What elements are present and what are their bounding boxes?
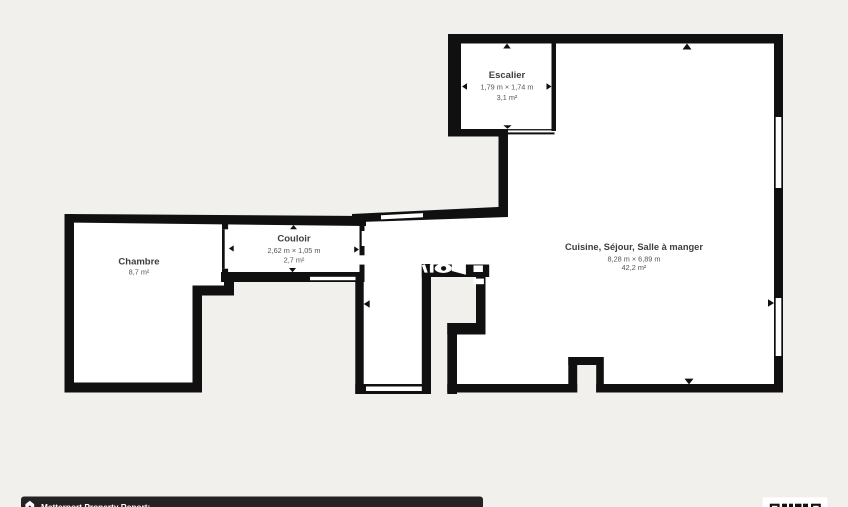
svg-text:1,79 m × 1,74 m: 1,79 m × 1,74 m — [481, 82, 534, 91]
svg-text:2,7 m²: 2,7 m² — [284, 256, 305, 265]
svg-text:42,2 m²: 42,2 m² — [622, 263, 647, 272]
svg-text:Cuisine, Séjour, Salle à mange: Cuisine, Séjour, Salle à manger — [565, 242, 703, 252]
svg-text:Couloir: Couloir — [277, 234, 311, 245]
svg-text:3,1 m²: 3,1 m² — [497, 93, 518, 102]
svg-text:8,7 m²: 8,7 m² — [129, 268, 150, 277]
svg-text:Chambre: Chambre — [118, 257, 159, 268]
svg-text:Matterport Property Report:: Matterport Property Report: — [41, 502, 150, 507]
svg-text:Escalier: Escalier — [489, 70, 526, 81]
svg-text:2,62 m × 1,05 m: 2,62 m × 1,05 m — [268, 246, 321, 255]
